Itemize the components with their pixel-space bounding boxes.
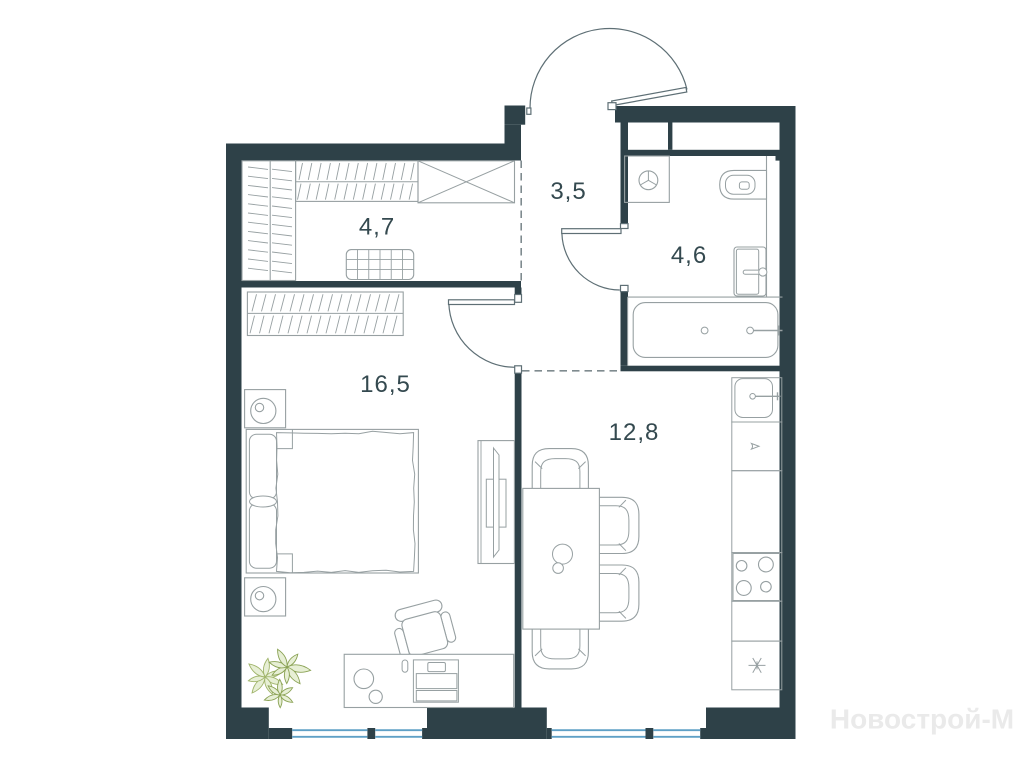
svg-text:4,7: 4,7 bbox=[359, 214, 395, 241]
svg-text:3,5: 3,5 bbox=[550, 178, 586, 205]
svg-text:16,5: 16,5 bbox=[360, 371, 411, 398]
svg-text:Новострой-М: Новострой-М bbox=[830, 704, 1014, 735]
svg-text:4,6: 4,6 bbox=[671, 242, 707, 269]
svg-text:12,8: 12,8 bbox=[609, 419, 660, 446]
